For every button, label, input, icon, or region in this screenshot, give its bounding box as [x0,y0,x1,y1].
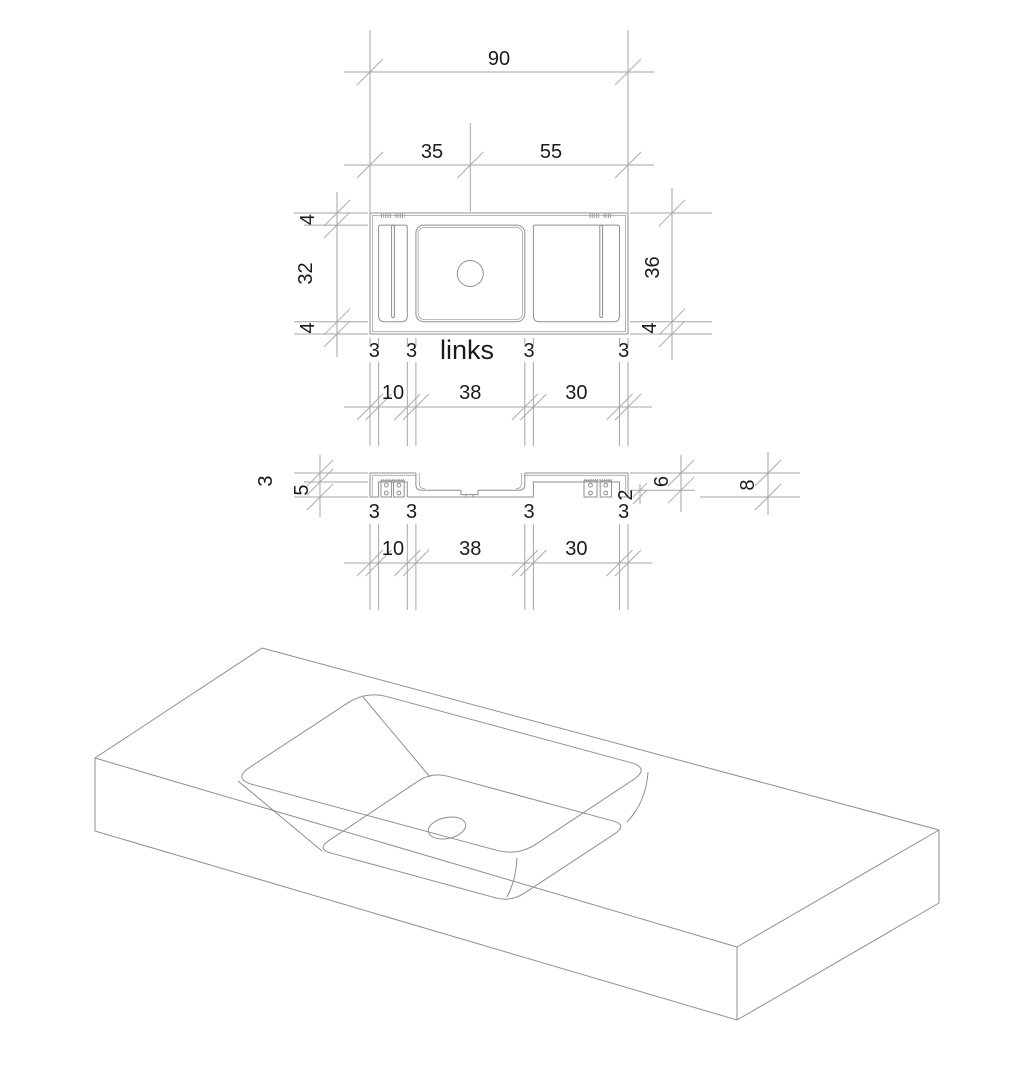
sec-dim-8-label: 8 [737,479,759,490]
plan-compartment-dims: 10 38 30 [344,382,652,420]
sec-dim-5-label: 5 [291,484,313,495]
sec-wall-label-3: 3 [524,501,535,523]
iso-ramp-back-edge [363,697,430,777]
iso-drain-hole [426,814,468,842]
dim-4-right-label: 4 [639,322,661,333]
dim-90-label: 90 [488,48,510,70]
plan-outline [370,213,628,334]
dim-front-rim-label: 4 [297,322,319,333]
plan-left-compartment [379,225,408,322]
plan-dim-10: 10 [382,382,404,404]
isometric-view [95,648,939,1020]
sec-dim-38: 38 [459,538,481,560]
plan-bottom-labels: 3 3 links 3 3 [369,335,630,365]
section-drain-recess [461,490,478,494]
sec-dim-10: 10 [382,538,404,560]
plan-basin [416,225,525,322]
washbasin-drawing: 90 35 55 4 32 4 36 4 3 3 [0,0,1019,1080]
section-outline-right [525,473,628,497]
technical-drawing-page: 90 35 55 4 32 4 36 4 3 3 [0,0,1019,1080]
plan-drain-hole [457,261,483,287]
iso-right-top-edge [737,830,939,947]
iso-front-right-wall-edge [507,858,517,897]
section-basin-right-fillet [516,473,522,489]
sec-dim-6-label: 6 [651,476,673,487]
iso-front-top-edge [95,758,737,947]
section-bottom-extension-lines [370,524,628,610]
plan-basin-inner-edge [418,227,522,319]
sec-wall-label-1: 3 [369,501,380,523]
sec-dim-3-label: 3 [255,475,277,486]
sec-wall-label-4: 3 [618,501,629,523]
plan-view [370,213,628,334]
iso-slab-outline [95,648,939,1020]
dim-35-label: 35 [421,141,443,163]
section-basin-left-fillet [419,473,425,489]
dim-overall-width: 90 [344,48,654,85]
sec-dim-30: 30 [565,538,587,560]
section-rim-edge-right [525,475,626,497]
plan-right-compartment [533,225,619,322]
dim-55-label: 55 [540,141,562,163]
plan-left-mount-slot [392,225,395,317]
view-title: links [440,335,494,365]
dim-drain-position: 35 55 [344,141,654,178]
plan-rim-edge [372,215,625,331]
plan-right-dim-chain: 36 4 [630,188,712,360]
iso-back-right-wall-edge [627,772,648,822]
plan-right-mount-slot [600,225,603,317]
dim-36-label: 36 [642,256,664,278]
section-compartment-dims: 10 38 30 [344,538,652,576]
section-bottom-labels: 3 3 3 3 [369,501,630,523]
section-outline-left [370,473,416,497]
section-right-dim-chain: 2 6 8 [615,452,800,515]
dim-inner-depth-label: 32 [295,262,317,284]
section-left-dim-chain: 3 5 [255,455,368,517]
section-left-recess [379,482,408,497]
plan-dim-38: 38 [459,382,481,404]
section-view [370,473,628,497]
plan-dim-30: 30 [565,382,587,404]
sec-wall-label-2: 3 [406,501,417,523]
iso-basin-rim [242,695,641,852]
dim-back-rim-label: 4 [297,214,319,225]
sec-dim-2-label: 2 [615,489,637,500]
iso-basin-floor [323,775,621,899]
plan-left-dim-chain: 4 32 4 [294,192,368,357]
